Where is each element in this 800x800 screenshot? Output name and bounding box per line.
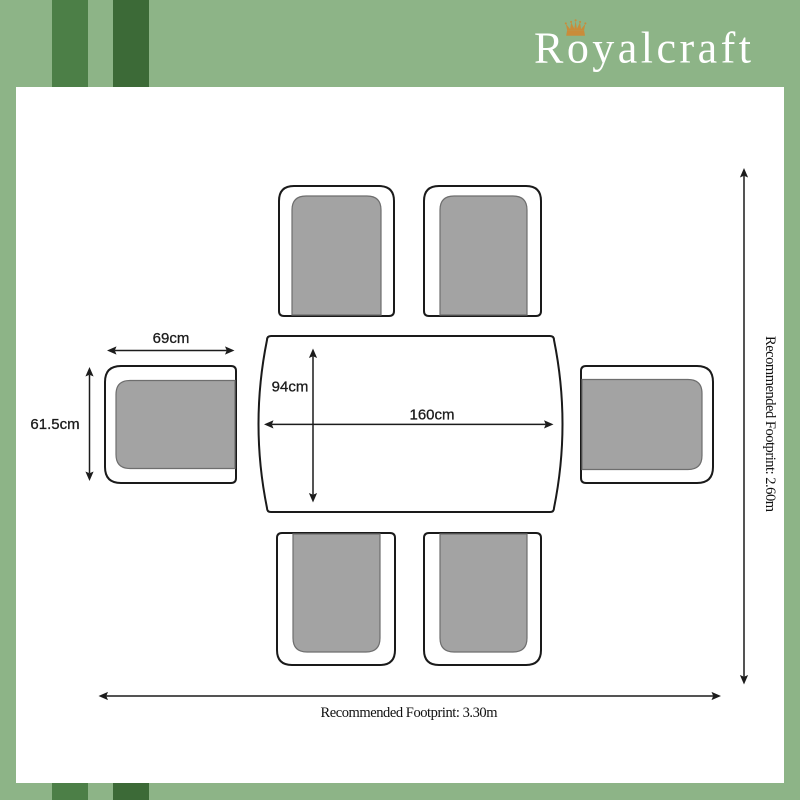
svg-text:61.5cm: 61.5cm <box>30 416 79 433</box>
svg-text:Recommended Footprint: 2.60m: Recommended Footprint: 2.60m <box>762 336 778 513</box>
svg-text:Recommended Footprint: 3.30m: Recommended Footprint: 3.30m <box>321 705 499 721</box>
svg-text:69cm: 69cm <box>153 330 190 347</box>
svg-text:94cm: 94cm <box>272 379 309 396</box>
svg-text:160cm: 160cm <box>409 406 454 423</box>
